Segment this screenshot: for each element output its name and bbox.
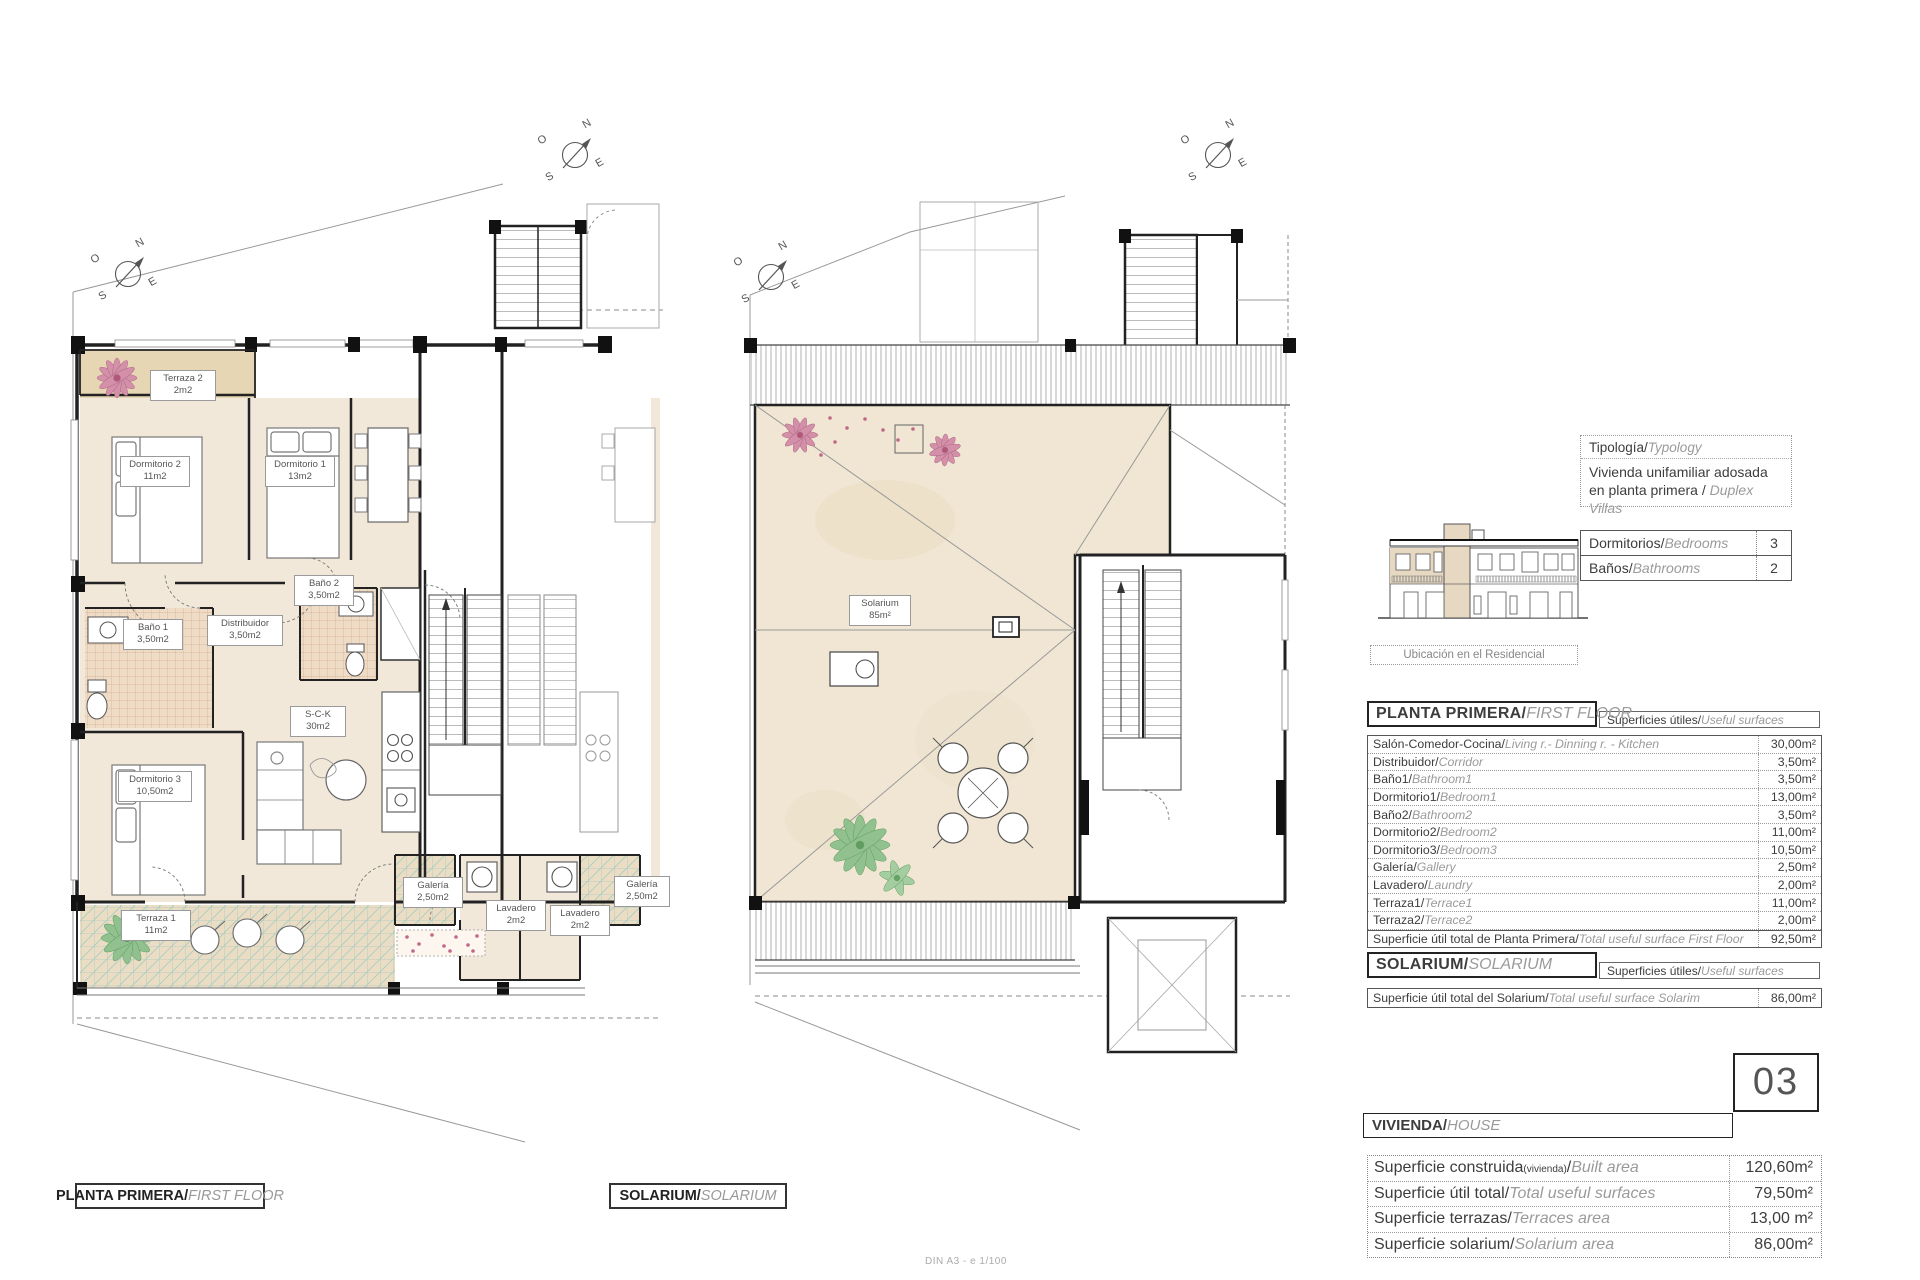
sheet-scale-note: DIN A3 - e 1/100 [925,1256,1007,1267]
architectural-sheet: N O E S N O E S N O E S N O E [0,0,1920,1280]
solarium-total-row: Superficie útil total del Solarium/Total… [1367,988,1822,1008]
surface-row: Galería/Gallery 2,50m² [1368,859,1821,877]
house-surface-row: Superficie útil total/Total useful surfa… [1368,1182,1821,1208]
elevation-caption: Ubicación en el Residencial [1370,645,1578,665]
first-floor-caption: PLANTA PRIMERA/FIRST FLOOR [75,1183,265,1209]
room-label-lavadero-2: Lavadero2m2 [550,905,610,936]
house-surface-row: Superficie construida(vivienda)/Built ar… [1368,1156,1821,1182]
surface-row: Dormitorio3/Bedroom3 10,50m² [1368,842,1821,860]
surface-row: Baño2/Bathroom2 3,50m² [1368,806,1821,824]
surface-row: Terraza1/Terrace1 11,00m² [1368,894,1821,912]
typology-box: Tipología/Typology Vivienda unifamiliar … [1580,435,1792,507]
typology-value: Vivienda unifamiliar adosada en planta p… [1581,459,1791,522]
surface-row: Terraza2/Terrace2 2,00m² [1368,912,1821,930]
room-label-dormitorio1: Dormitorio 113m2 [265,456,335,487]
house-surfaces-table: Superficie construida(vivienda)/Built ar… [1367,1155,1822,1258]
room-label-lavadero: Lavadero2m2 [486,900,546,931]
solarium-section-header: SOLARIUM/SOLARIUM [1367,952,1597,978]
room-label-dormitorio2: Dormitorio 211m2 [120,456,190,487]
surface-row: Distribuidor/Corridor 3,50m² [1368,754,1821,772]
room-label-galeria-2: Galería2,50m2 [614,876,670,907]
surface-row: Lavadero/Laundry 2,00m² [1368,877,1821,895]
compass-icon: N O E S [88,231,168,311]
room-label-distribuidor: Distribuidor3,50m2 [207,615,283,646]
room-label-terraza2: Terraza 22m2 [150,370,216,401]
useful-surfaces-label: Superficies útiles/Useful surfaces [1599,962,1820,979]
spec-row-bathrooms: Baños/Bathrooms 2 [1581,555,1791,580]
compass-icon: N O E S [1178,112,1258,192]
surface-row: Baño1/Bathroom1 3,50m² [1368,771,1821,789]
unit-number-badge: 03 [1733,1053,1819,1112]
room-label-bano1: Baño 13,50m2 [123,619,183,650]
room-label-terraza1: Terraza 111m2 [121,910,191,941]
room-label-galeria: Galería2,50m2 [403,877,463,908]
surface-row: Dormitorio2/Bedroom2 11,00m² [1368,824,1821,842]
typology-title: Tipología/Typology [1581,436,1791,459]
specs-table: Dormitorios/Bedrooms 3 Baños/Bathrooms 2 [1580,530,1792,581]
room-label-solarium: Solarium85m² [849,595,911,626]
first-floor-surfaces-table: Salón-Comedor-Cocina/Living r.- Dinning … [1367,735,1822,948]
building-elevation-drawing [1378,518,1588,624]
vivienda-section-header: VIVIENDA/HOUSE [1363,1113,1733,1138]
house-surface-row: Superficie terrazas/Terraces area 13,00 … [1368,1207,1821,1233]
surface-row: Salón-Comedor-Cocina/Living r.- Dinning … [1368,736,1821,754]
solarium-plan-drawing [735,140,1305,1220]
house-surface-row: Superficie solarium/Solarium area 86,00m… [1368,1233,1821,1258]
first-floor-section-header: PLANTA PRIMERA/FIRST FLOOR [1367,701,1597,727]
surface-row: Dormitorio1/Bedroom1 13,00m² [1368,789,1821,807]
compass-icon: N O E S [535,112,615,192]
solarium-caption: SOLARIUM/SOLARIUM [609,1183,787,1209]
room-label-sck: S-C-K30m2 [290,706,346,737]
room-label-bano2: Baño 23,50m2 [294,575,354,606]
room-label-dormitorio3: Dormitorio 310,50m2 [118,771,192,802]
spec-row-bedrooms: Dormitorios/Bedrooms 3 [1581,531,1791,555]
surface-total-row: Superficie útil total de Planta Primera/… [1368,930,1821,948]
compass-icon: N O E S [731,234,811,314]
useful-surfaces-label: Superficies útiles/Useful surfaces [1599,711,1820,728]
